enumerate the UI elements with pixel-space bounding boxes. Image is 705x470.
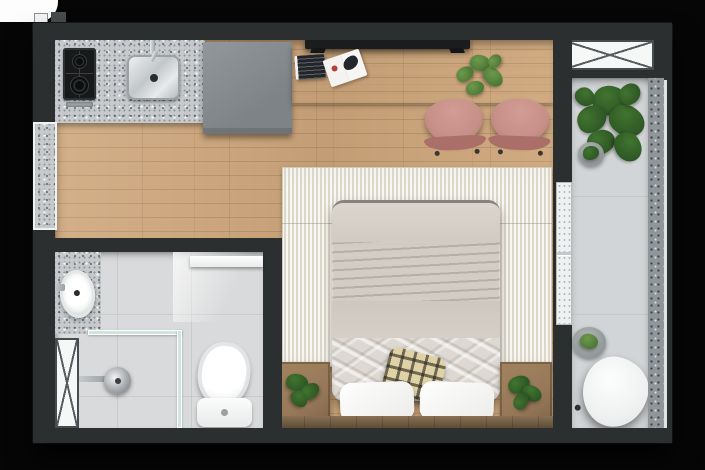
floor-plan xyxy=(33,23,672,443)
utility-shaft-symbol xyxy=(55,338,79,428)
tall-cabinet xyxy=(203,42,292,134)
balcony-small-pot xyxy=(578,142,604,166)
shower-glass-horizontal xyxy=(88,330,182,335)
screenshot-root: { "image_type": "architectural-floor-pla… xyxy=(0,0,705,470)
headboard xyxy=(278,416,555,428)
shower-head xyxy=(104,367,131,394)
nightstand-right xyxy=(500,362,552,422)
left-window xyxy=(33,122,57,230)
desk-plant xyxy=(454,53,510,101)
bed-duvet-foot xyxy=(332,203,500,245)
balcony-partition-upper xyxy=(553,40,572,182)
page-corner-fragment xyxy=(0,0,58,22)
balcony-round-planter xyxy=(572,327,606,358)
balcony-utility-box xyxy=(566,40,654,70)
wall-right xyxy=(667,23,672,443)
wall-left-upper xyxy=(33,23,55,122)
magazine-stack xyxy=(294,54,326,80)
toilet-tank xyxy=(197,398,252,427)
cooktop xyxy=(63,48,96,100)
chair-left xyxy=(424,98,484,145)
wall-left-lower xyxy=(33,230,55,443)
balcony-partition-lower xyxy=(553,325,572,428)
wall-top xyxy=(33,23,672,40)
bathroom-sliding-door xyxy=(190,256,263,267)
bed-duvet-mid xyxy=(332,301,500,341)
nightstand-left xyxy=(280,362,330,422)
balcony-glass-door xyxy=(556,182,572,325)
bathroom-wall-top xyxy=(33,238,282,252)
wall-bottom xyxy=(33,428,672,443)
kitchen-sink xyxy=(127,55,180,100)
chair-right xyxy=(490,98,550,144)
balcony-railing xyxy=(648,78,664,433)
shower-glass-vertical xyxy=(177,330,182,428)
bathroom-wall-right xyxy=(263,238,282,428)
brown-throw xyxy=(332,239,500,304)
cooktop-knobs xyxy=(66,102,93,107)
